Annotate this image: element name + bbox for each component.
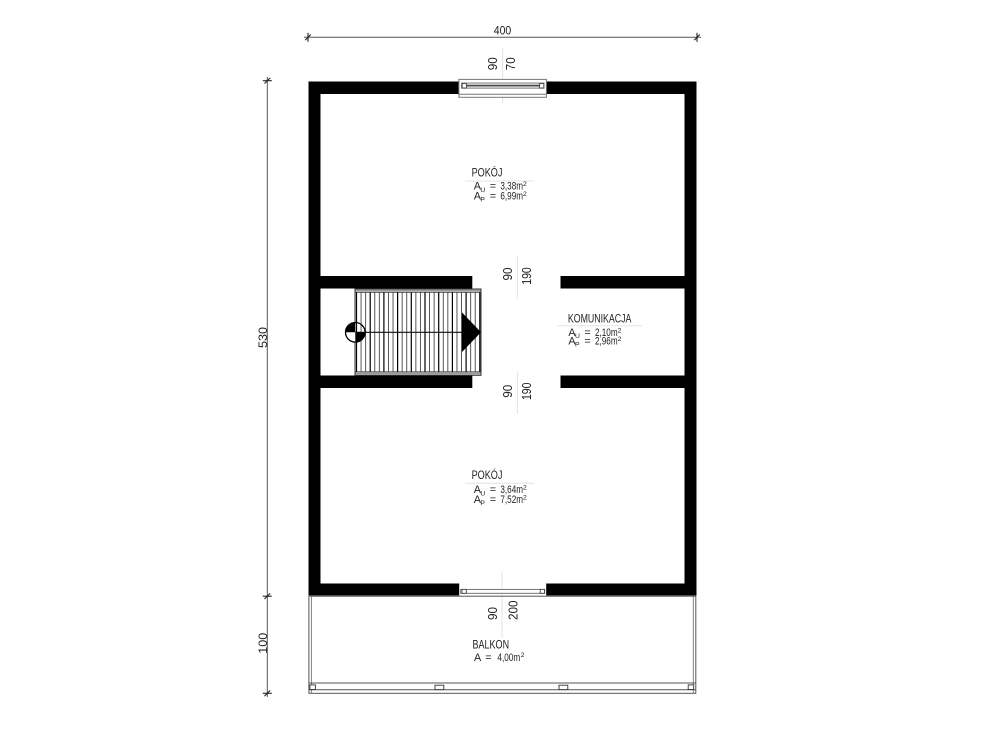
svg-text:POKÓJ: POKÓJ	[472, 166, 503, 180]
svg-text:200: 200	[506, 601, 520, 621]
svg-text:90: 90	[486, 607, 500, 620]
svg-text:400: 400	[494, 24, 512, 38]
svg-text:KOMUNIKACJA: KOMUNIKACJA	[568, 311, 632, 325]
svg-text:70: 70	[504, 57, 518, 70]
svg-text:90: 90	[501, 267, 515, 280]
svg-text:BALKON: BALKON	[473, 638, 510, 652]
svg-text:90: 90	[501, 385, 515, 398]
svg-text:190: 190	[520, 267, 534, 285]
svg-text:190: 190	[520, 383, 534, 401]
svg-text:POKÓJ: POKÓJ	[472, 468, 503, 482]
svg-text:100: 100	[256, 632, 270, 653]
svg-text:90: 90	[486, 57, 500, 70]
svg-text:530: 530	[256, 327, 270, 348]
